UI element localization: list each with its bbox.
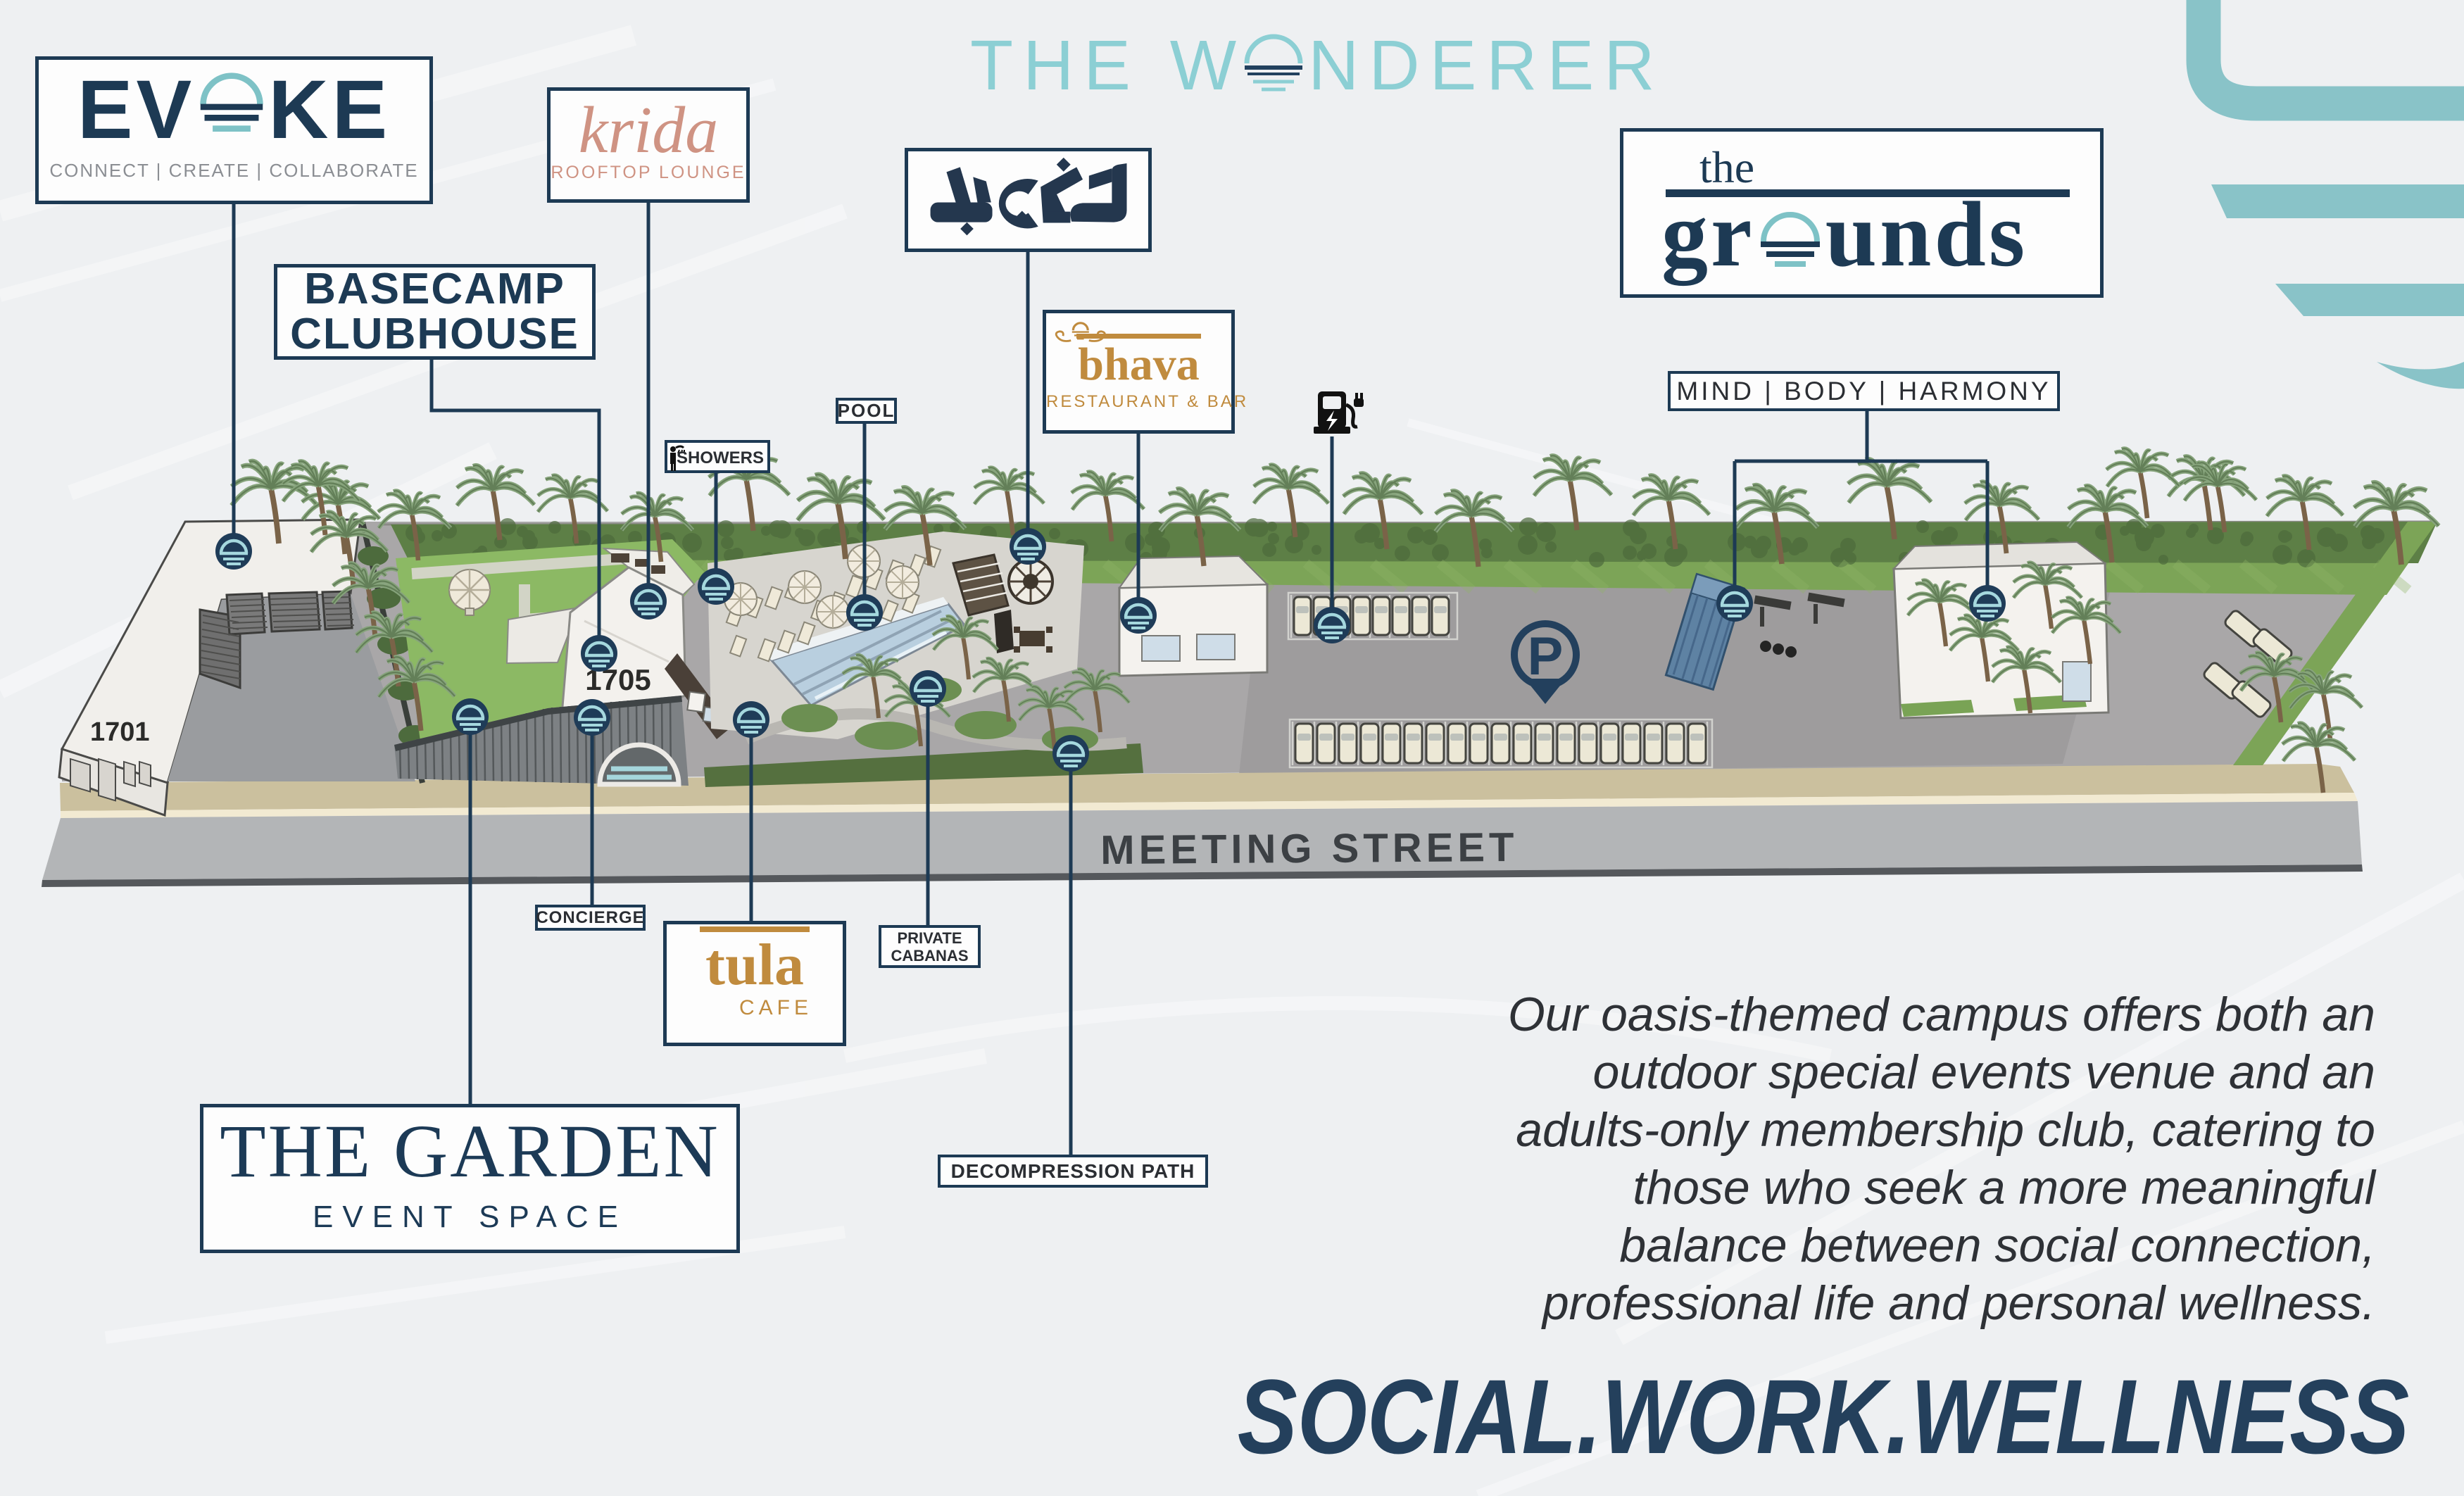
svg-text:MEETING STREET: MEETING STREET bbox=[1100, 824, 1519, 873]
svg-text:P: P bbox=[1528, 627, 1564, 686]
svg-text:1701: 1701 bbox=[90, 717, 150, 747]
